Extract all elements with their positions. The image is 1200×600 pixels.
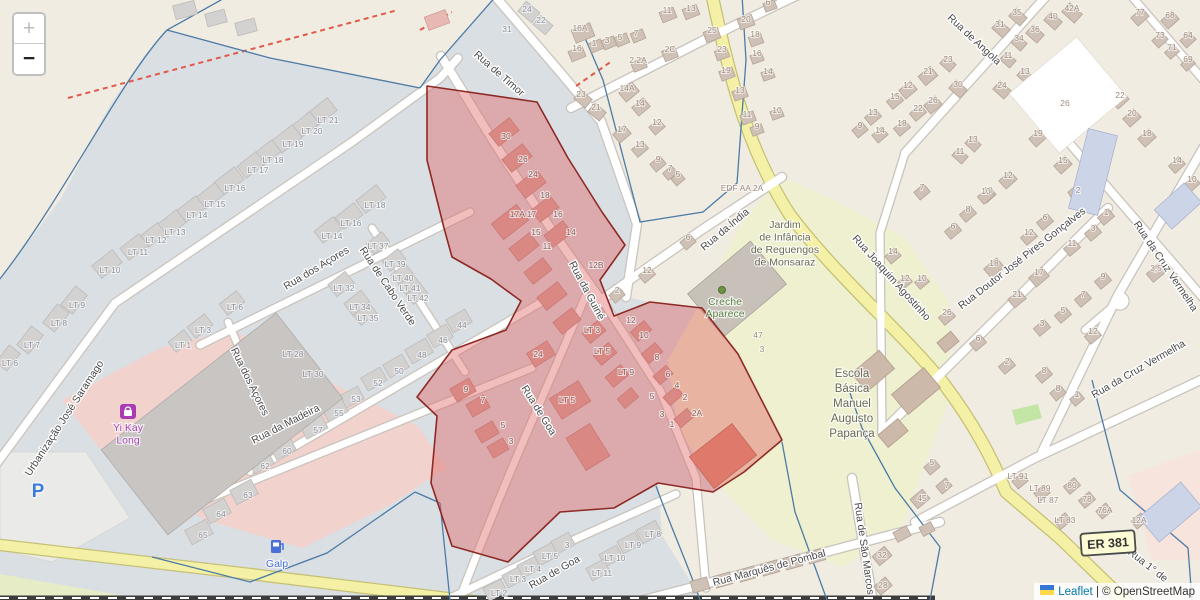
house-number: LT 39 [385, 259, 406, 269]
house-number: LT 19 [283, 139, 304, 149]
house-number: 69 [1183, 54, 1193, 64]
house-number: 7 [634, 28, 639, 38]
house-number: LT 6 [2, 358, 18, 368]
house-number: 5 [618, 32, 623, 42]
house-number: LT 9 [625, 540, 641, 550]
house-number: LT 11 [128, 247, 149, 257]
house-number: 12 [1088, 326, 1098, 336]
house-number: 1 [1075, 389, 1080, 399]
house-number: 26 [942, 307, 952, 317]
house-number: 65 [198, 530, 208, 540]
house-number: LT 87 [1038, 495, 1059, 505]
creche-label: CrecheAparece [705, 296, 744, 320]
house-number: 80 [1067, 480, 1077, 490]
street-label: Rua Marquês de Pombal [712, 547, 827, 589]
house-number: 8 [1056, 383, 1061, 393]
house-number: 64 [216, 509, 226, 519]
house-number: 15 [890, 91, 900, 101]
house-number: 26 [518, 154, 528, 164]
house-number: 21 [923, 66, 933, 76]
house-number: LT 89 [1030, 483, 1051, 493]
house-number: 13 [735, 85, 745, 95]
house-number: 46 [438, 335, 448, 345]
house-number: 2C [665, 44, 676, 54]
building [235, 18, 258, 36]
map-canvas[interactable]: Rua de TimorRua da GuinéRua de GoaRua de… [0, 0, 1200, 600]
house-number: LT 91 [1008, 471, 1029, 481]
fuel-label: Galp [266, 558, 288, 570]
building [205, 9, 228, 27]
house-number: 3 [660, 409, 665, 419]
house-number: 1 [670, 419, 675, 429]
house-number: 26 [1060, 98, 1070, 108]
house-number: 19 [721, 65, 731, 75]
house-number: 10 [639, 330, 649, 340]
house-number: 12B [588, 260, 603, 270]
house-number: 78 [1082, 494, 1092, 504]
house-number: 26 [928, 95, 938, 105]
house-number: 13 [868, 107, 878, 117]
house-number: 20 [1127, 108, 1137, 118]
house-number: 8 [966, 204, 971, 214]
house-number: 11 [743, 109, 752, 119]
house-number: 5 [676, 169, 681, 179]
house-number: 73 [1155, 30, 1165, 40]
house-number: 6 [951, 221, 956, 231]
house-number: LT 20 [302, 126, 323, 136]
house-number: 13 [686, 3, 696, 13]
house-number: 9 [858, 120, 863, 130]
house-number: LT 12 [146, 235, 167, 245]
house-number: 52 [373, 378, 383, 388]
house-number: 34 [1014, 33, 1024, 43]
house-number: 11 [543, 241, 552, 251]
house-number: LT 16 [225, 183, 246, 193]
house-number: 2 [1076, 185, 1081, 195]
house-number: 23 [576, 89, 586, 99]
house-number: 24 [533, 349, 543, 359]
parking-label: P [32, 481, 45, 502]
house-number: 3 [1091, 223, 1096, 233]
building [1069, 129, 1118, 216]
house-number: LT 9 [618, 367, 634, 377]
house-number: 6 [666, 369, 671, 379]
house-number: 57 [313, 425, 323, 435]
house-number: LT 15 [205, 199, 226, 209]
house-number: 12 [1003, 170, 1013, 180]
house-number: LT 8 [51, 318, 67, 328]
house-number: 23 [943, 54, 953, 64]
house-number: 44 [457, 320, 467, 330]
house-number: 32 [877, 550, 887, 560]
house-number: 12 [642, 265, 652, 275]
house-number: LT 5 [542, 551, 558, 561]
house-number: 17 [1034, 267, 1044, 277]
route-badge-text: ER 381 [1087, 535, 1130, 552]
cul-de-sac [1112, 293, 1129, 310]
house-number: LT 16 [341, 218, 362, 228]
house-number: 16A [572, 23, 587, 33]
shop-label: Yi KayLong [113, 422, 144, 447]
house-number: 76A [1097, 505, 1112, 515]
house-number: 77 [1135, 7, 1145, 17]
grass-patch [1012, 404, 1042, 425]
zoom-in-button[interactable]: + [14, 14, 44, 44]
house-number: 15 [1058, 155, 1068, 165]
ukraine-flag-icon [1040, 585, 1054, 598]
zoom-control: + − [12, 12, 46, 76]
osm-copyright: © OpenStreetMap [1102, 586, 1195, 598]
house-number: 23 [717, 44, 727, 54]
house-number: 12 [903, 80, 913, 90]
house-number: 9 [755, 121, 760, 131]
house-number: LT 3 [195, 325, 211, 335]
house-number: LT 10 [100, 265, 121, 275]
house-number: 3 [509, 436, 514, 446]
house-number: LT 37 [368, 241, 389, 251]
house-number: 24 [528, 169, 538, 179]
house-number: 14 [888, 246, 898, 256]
house-number: 18 [750, 29, 760, 39]
house-number: LT 28 [283, 349, 304, 359]
house-number: 14 [875, 125, 885, 135]
house-number: 18 [540, 190, 550, 200]
house-number: 18 [1142, 128, 1152, 138]
house-number: 5 [650, 391, 655, 401]
house-number: 9 [1101, 271, 1106, 281]
house-number: 30 [501, 131, 511, 141]
house-number: 60 [282, 446, 292, 456]
house-number: 11 [1004, 50, 1013, 60]
house-number: 24 [997, 80, 1007, 90]
house-number: LT 5 [559, 395, 575, 405]
house-number: 68 [1165, 10, 1175, 20]
house-number: 19 [1033, 128, 1043, 138]
house-number: 3 [1040, 318, 1045, 328]
house-number: 50 [394, 366, 404, 376]
house-number: 63 [243, 490, 253, 500]
house-number: 3 [565, 540, 570, 550]
house-number: 6 [1043, 212, 1048, 222]
house-number: 2 [615, 285, 620, 295]
house-number: 16 [572, 43, 582, 53]
house-number: 22 [536, 15, 546, 25]
house-number: 18 [897, 118, 907, 128]
house-number: LT 14 [322, 231, 343, 241]
house-number: 12 [1024, 227, 1034, 237]
house-number: 13 [635, 139, 645, 149]
house-number: 12 [900, 273, 910, 283]
house-number: LT 4 [525, 564, 541, 574]
house-number: 47 [753, 330, 763, 340]
house-number: 3 [605, 35, 610, 45]
house-number: LT 30 [303, 369, 324, 379]
house-number: 21 [1012, 289, 1022, 299]
house-number: LT 83 [1055, 515, 1076, 525]
house-number: 2 [683, 392, 688, 402]
house-number: 2A [692, 408, 703, 418]
house-number: 2 [1005, 356, 1010, 366]
house-number: 35 [1012, 7, 1022, 17]
house-number: 1 [592, 38, 597, 48]
school-label: EscolaBásicaManuelAugustoPapança [829, 368, 875, 440]
house-number: LT 7 [24, 340, 40, 350]
house-number: LT 35 [358, 313, 379, 323]
map[interactable]: Rua de TimorRua da GuinéRua de GoaRua de… [0, 0, 1200, 600]
house-number: 11 [956, 146, 965, 156]
house-number: LT 3 [584, 325, 600, 335]
house-number: 7 [920, 182, 925, 192]
house-number: 2 2A [629, 55, 647, 65]
house-number: 14 [1172, 155, 1182, 165]
house-number: 5 [1061, 305, 1066, 315]
house-number: 24 [522, 4, 532, 14]
attribution-separator: | [1093, 586, 1102, 598]
house-number: 12 [626, 315, 636, 325]
house-number: LT 32 [334, 283, 355, 293]
house-number: 16 [553, 209, 563, 219]
attribution-bar: Leaflet | © OpenStreetMap [1034, 583, 1200, 600]
house-number: 7 [668, 163, 673, 173]
house-number: 10 [981, 186, 991, 196]
house-number: 10 [1187, 174, 1197, 184]
house-number: 48 [417, 350, 427, 360]
route-badge: ER 381 [1080, 530, 1135, 556]
house-number: 3 [760, 344, 765, 354]
house-number: 25 [707, 25, 717, 35]
house-number: 71 [1167, 42, 1177, 52]
street-label: Rua da Cruz Vermelha [1131, 219, 1200, 314]
house-number: 7 [945, 480, 950, 490]
house-number: 3,5 [1150, 263, 1162, 273]
house-number: 4 [675, 380, 680, 390]
house-number: 28 [878, 580, 888, 590]
house-number: LT 9 [69, 300, 85, 310]
house-number: 12 [652, 117, 662, 127]
house-number: 45 [917, 493, 927, 503]
house-number: 21 [591, 102, 601, 112]
house-number: 6 [976, 333, 981, 343]
house-number: 6 [686, 232, 691, 242]
house-number: 18 [989, 258, 999, 268]
house-number: LT 13 [165, 227, 186, 237]
house-number: 14 [635, 98, 645, 108]
house-number: LT 42 [408, 293, 429, 303]
house-number: LT 2 [491, 588, 507, 598]
house-number: 14 [763, 66, 773, 76]
house-number: LT 10 [605, 553, 626, 563]
house-number: LT 8 [645, 529, 661, 539]
house-number: 1 [1104, 207, 1109, 217]
house-number: LT 14 [187, 210, 208, 220]
house-number: 7 [481, 395, 486, 405]
house-number: 42A [1064, 3, 1079, 13]
house-number: 17A 17 [510, 209, 537, 219]
house-number: 13 [968, 134, 978, 144]
house-number: LT 18 [365, 200, 386, 210]
leaflet-link[interactable]: Leaflet [1058, 586, 1093, 598]
house-number: LT 17 [248, 165, 269, 175]
house-number: 5 [930, 457, 935, 467]
house-number: 64 [1183, 30, 1193, 40]
house-number: 14 [566, 227, 576, 237]
zoom-out-button[interactable]: − [14, 44, 44, 74]
house-number: 10 [772, 105, 782, 115]
house-number: LT 1 [175, 340, 191, 350]
house-number: 55 [334, 408, 344, 418]
house-number: 53 [351, 394, 361, 404]
house-number: 30 [953, 79, 963, 89]
house-number: 14A [619, 83, 634, 93]
shop-bag-icon [120, 404, 136, 419]
house-number: 12A [1131, 515, 1146, 525]
house-number: 7 [1081, 289, 1086, 299]
house-number: LT 3 [510, 574, 526, 584]
house-number: LT 41 [400, 283, 421, 293]
house-number: 13 [1020, 66, 1030, 76]
house-number: 9 [656, 154, 661, 164]
house-number: 16 [752, 48, 762, 58]
house-number: LT 18 [263, 155, 284, 165]
house-number: 20 [741, 14, 751, 24]
house-number: 6 [766, 0, 771, 7]
house-number: 40 [1048, 11, 1058, 21]
house-number: 31 [995, 19, 1005, 29]
house-number: 8 [1042, 365, 1047, 375]
house-number: 17 [617, 124, 627, 134]
house-number: LT 11 [592, 568, 613, 578]
house-number: LT 6 [227, 302, 243, 312]
house-number: 8 [655, 352, 660, 362]
house-number: 11 [1068, 238, 1077, 248]
house-number: LT 40 [393, 273, 414, 283]
house-number: 31 [502, 24, 512, 34]
house-number: LT 21 [318, 115, 339, 125]
building [424, 10, 449, 31]
house-number: 22 [1115, 90, 1125, 100]
house-number: 22 [913, 103, 923, 113]
creche-dot-icon [719, 287, 726, 294]
house-number: 9 [464, 384, 469, 394]
house-number: 10 [917, 273, 927, 283]
house-number: LT 34 [350, 302, 371, 312]
building [173, 0, 198, 19]
house-number: 62 [260, 461, 270, 471]
house-number: LT 5 [594, 346, 610, 356]
house-number: 11 [663, 5, 672, 15]
house-number: 15 [531, 227, 541, 237]
house-number: 36 [1030, 24, 1040, 34]
house-number: 5 [501, 420, 506, 430]
house-number: EDF AA 2A [721, 183, 764, 193]
